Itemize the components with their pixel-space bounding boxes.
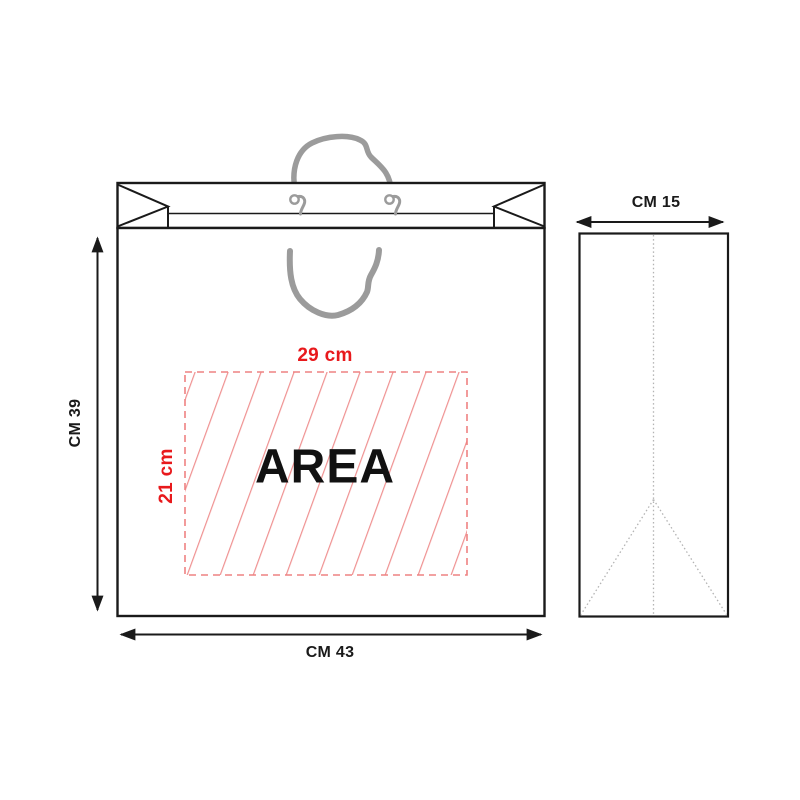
bag-width-label: CM 43 [306,644,355,662]
print-area-width-label: 29 cm [297,345,352,367]
print-area-title: AREA [255,440,395,495]
bag-height-label: CM 39 [67,399,85,448]
bag-spec-diagram: CM 39 CM 43 CM 15 29 cm 21 cm AREA [0,0,800,800]
bag-side-view [580,234,729,617]
print-area-height-label: 21 cm [156,448,178,503]
diagram-canvas [0,0,800,800]
bag-depth-label: CM 15 [632,194,681,212]
bag-top-fold-strip [118,183,545,228]
